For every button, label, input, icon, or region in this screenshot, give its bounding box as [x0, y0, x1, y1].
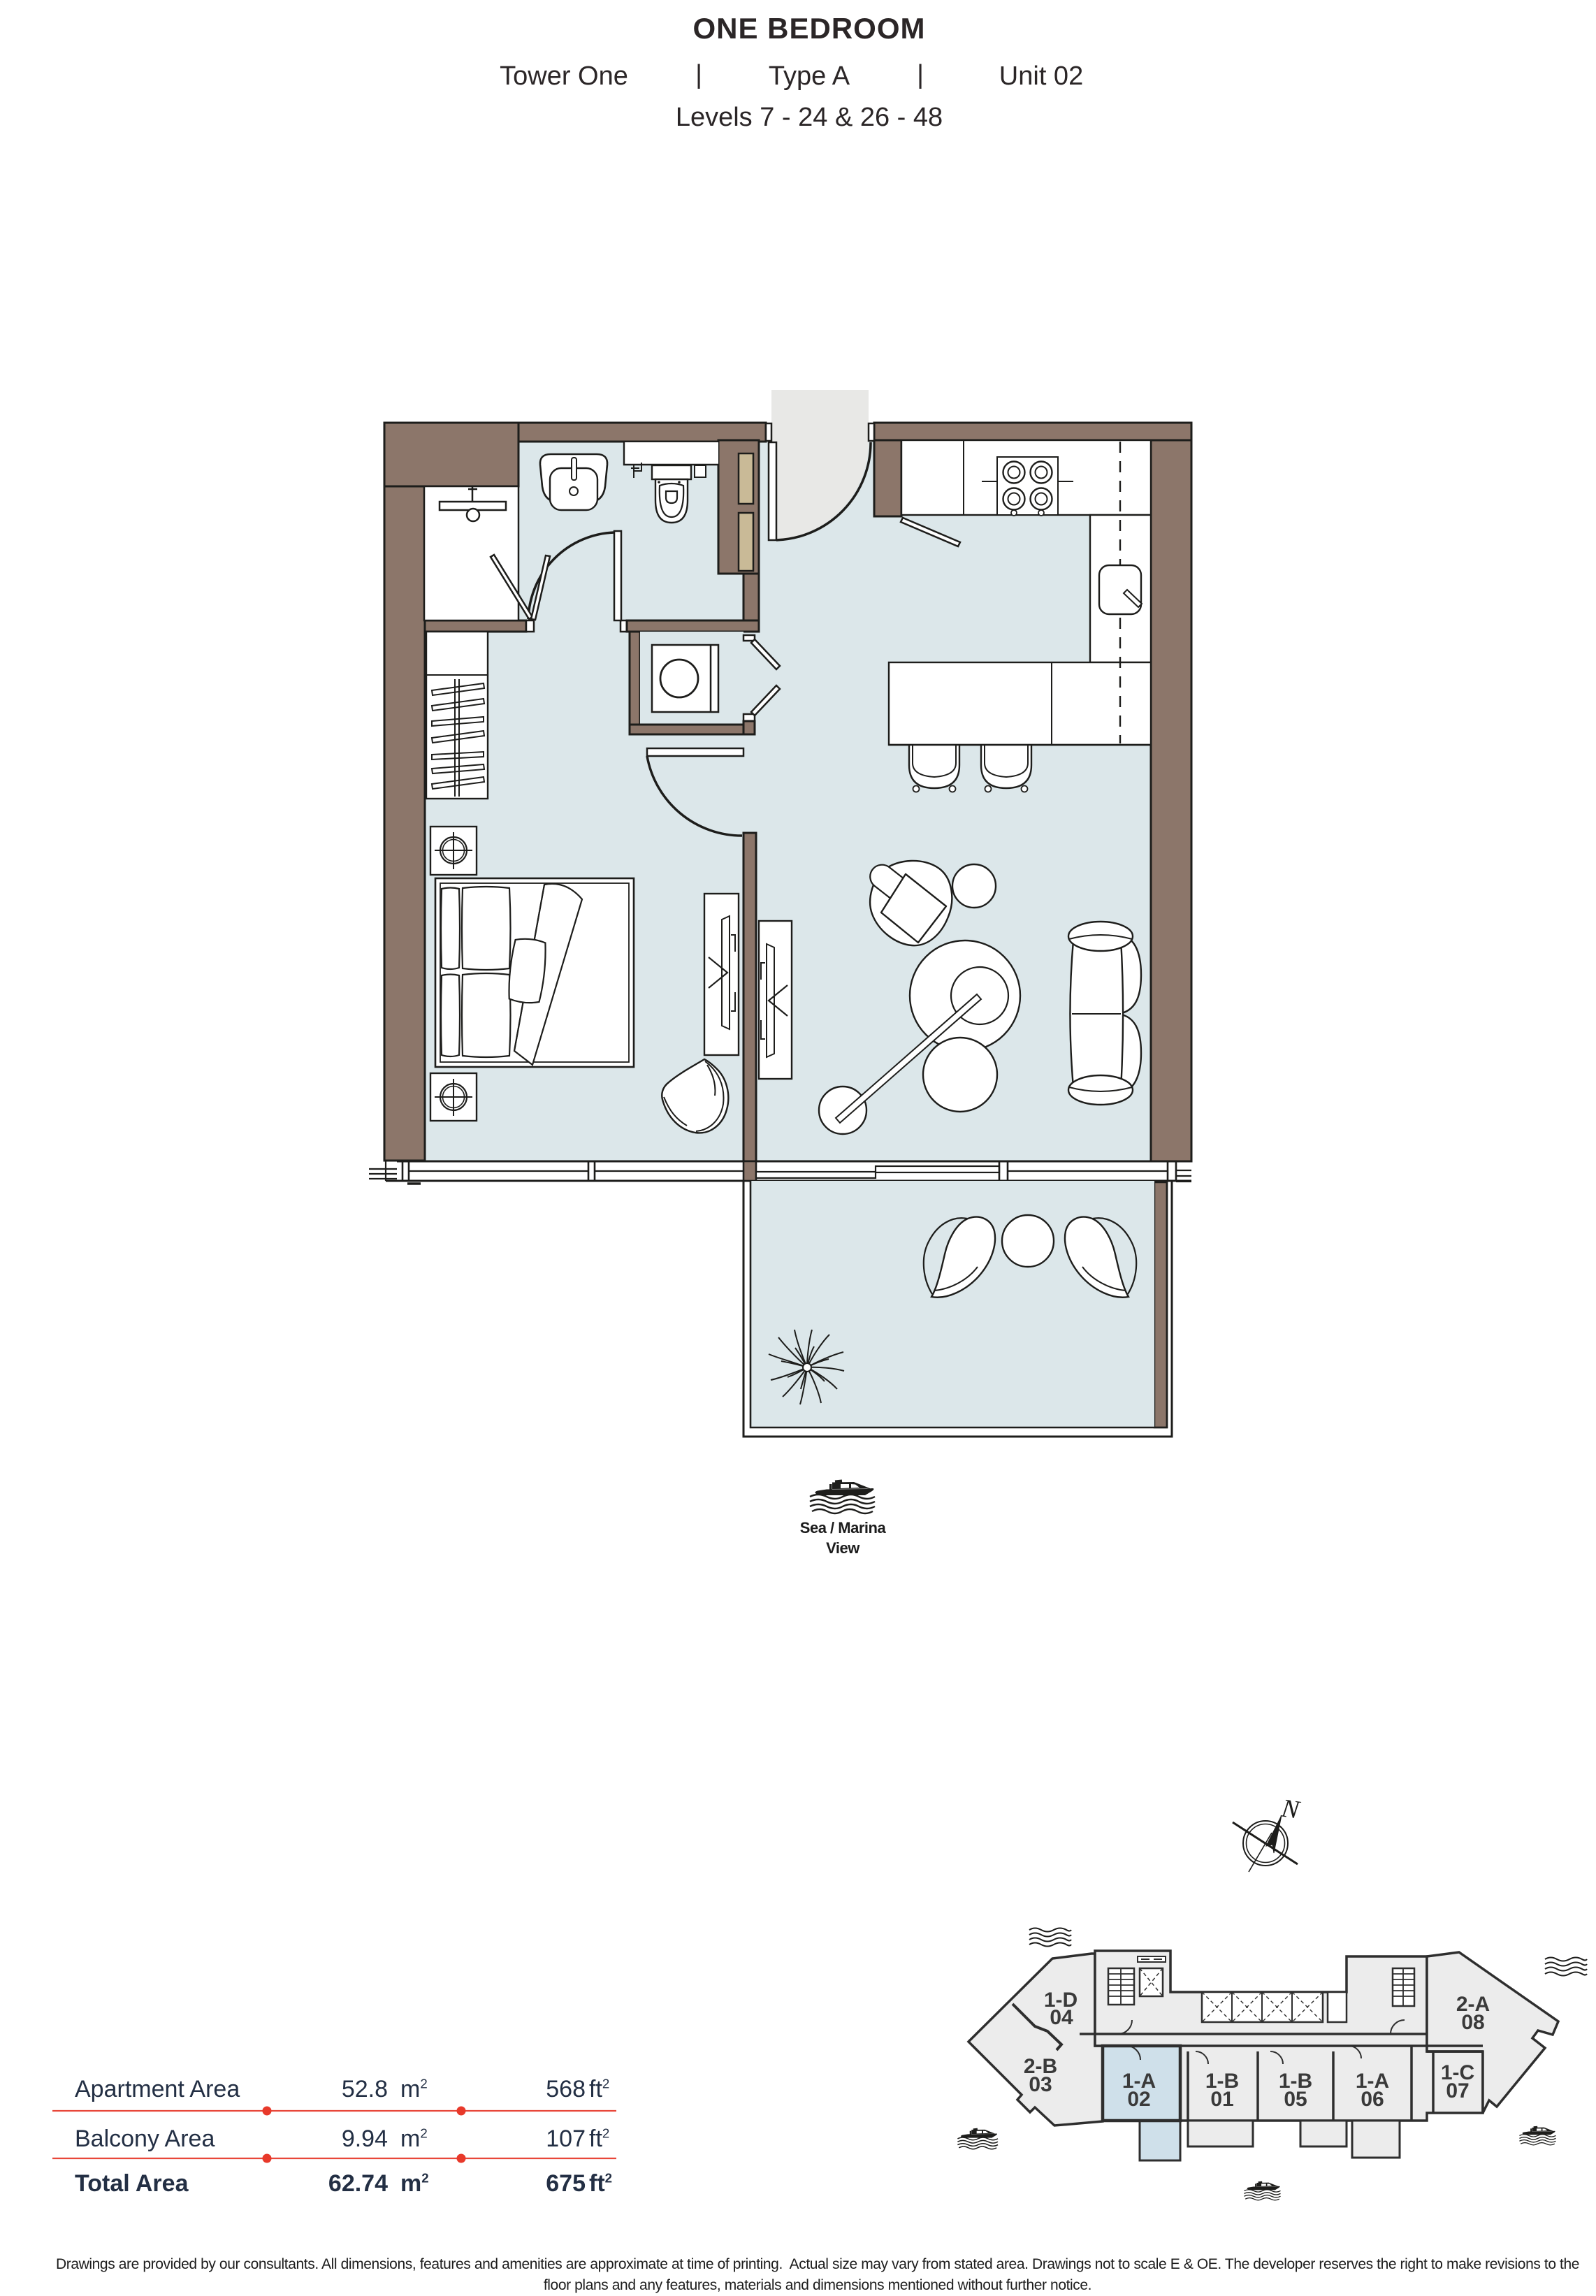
svg-text:01: 01 [1210, 2088, 1233, 2111]
svg-text:05: 05 [1284, 2088, 1307, 2111]
svg-text:06: 06 [1361, 2088, 1384, 2111]
svg-text:08: 08 [1461, 2011, 1484, 2034]
svg-text:N: N [1279, 1794, 1303, 1824]
svg-text:03: 03 [1029, 2073, 1052, 2096]
svg-text:07: 07 [1446, 2079, 1469, 2102]
svg-text:04: 04 [1050, 2006, 1073, 2029]
svg-text:02: 02 [1127, 2088, 1150, 2111]
